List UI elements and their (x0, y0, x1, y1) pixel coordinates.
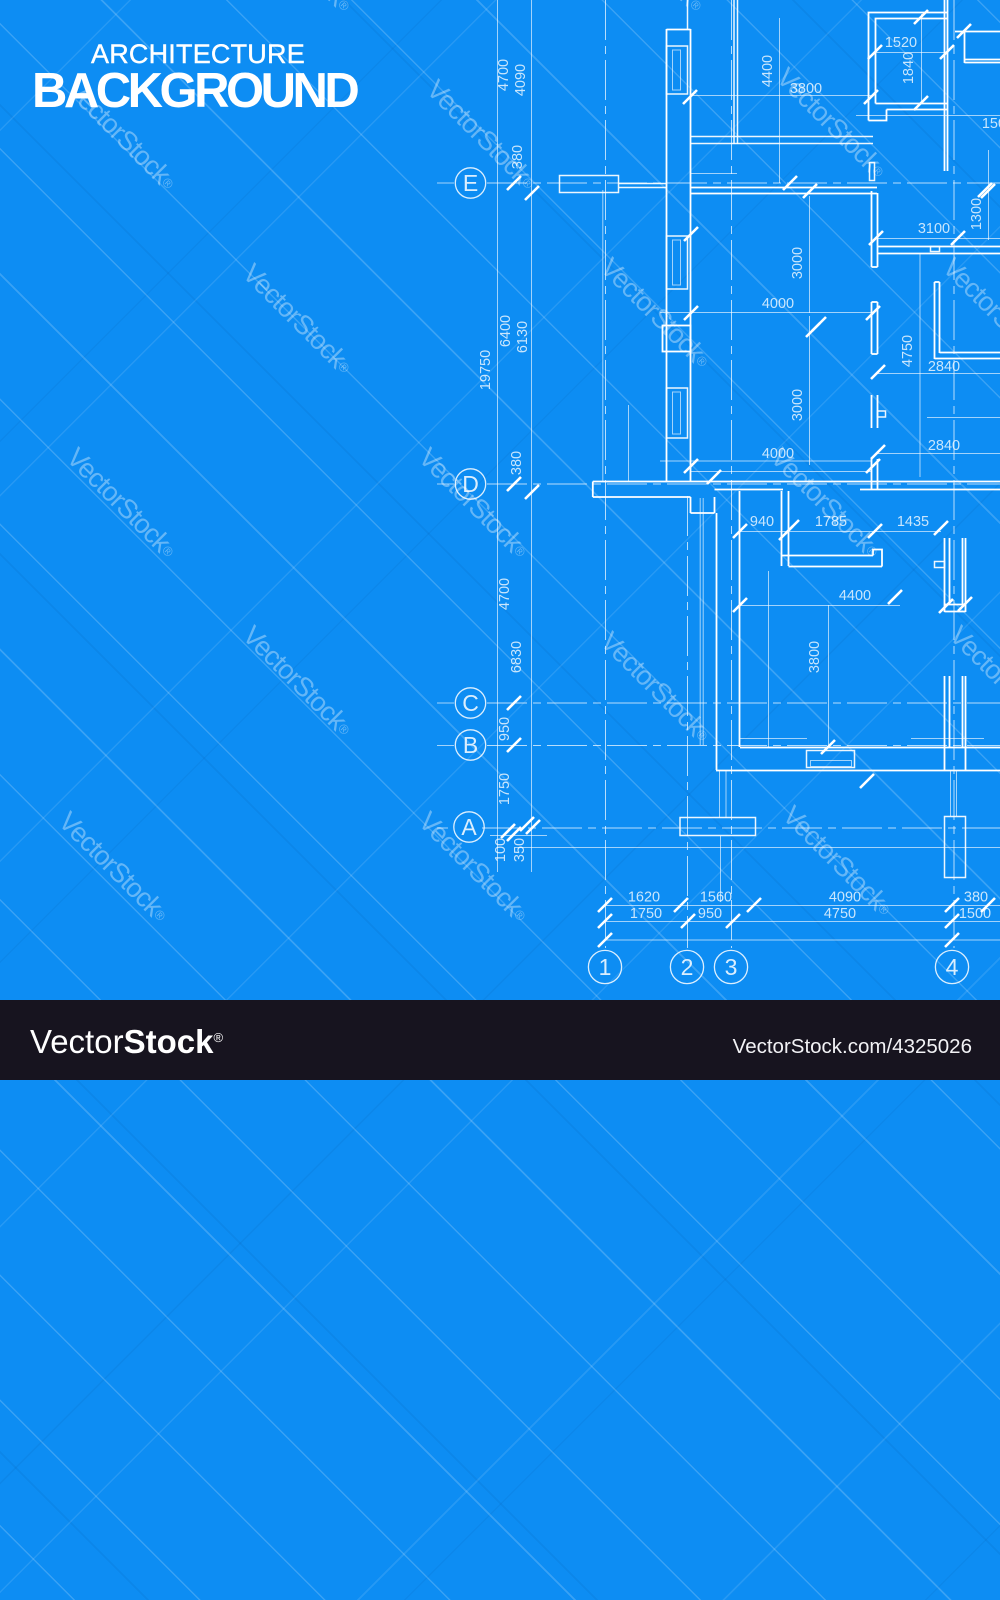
svg-text:380: 380 (964, 890, 988, 906)
svg-text:1: 1 (599, 954, 612, 980)
svg-text:1520: 1520 (885, 35, 917, 51)
svg-text:1750: 1750 (630, 906, 662, 922)
svg-text:A: A (461, 814, 477, 840)
svg-text:950: 950 (497, 717, 513, 741)
svg-text:100: 100 (493, 838, 509, 862)
svg-text:4090: 4090 (513, 64, 529, 96)
svg-text:1750: 1750 (497, 773, 513, 805)
svg-text:4400: 4400 (760, 55, 776, 87)
svg-text:380: 380 (509, 451, 525, 475)
svg-text:1620: 1620 (628, 890, 660, 906)
svg-text:4700: 4700 (497, 578, 513, 610)
svg-text:4090: 4090 (829, 890, 861, 906)
svg-text:B: B (463, 732, 478, 758)
svg-text:4000: 4000 (762, 296, 794, 312)
svg-text:6130: 6130 (515, 321, 531, 353)
svg-text:2: 2 (681, 954, 694, 980)
svg-text:4750: 4750 (900, 335, 916, 367)
svg-text:380: 380 (510, 145, 526, 169)
svg-text:1500: 1500 (982, 116, 1000, 132)
svg-text:4400: 4400 (839, 588, 871, 604)
svg-text:950: 950 (698, 906, 722, 922)
svg-text:3: 3 (725, 954, 738, 980)
svg-text:6830: 6830 (509, 641, 525, 673)
svg-text:C: C (462, 690, 479, 716)
svg-text:4: 4 (946, 954, 959, 980)
svg-text:3800: 3800 (807, 641, 823, 673)
svg-text:3000: 3000 (790, 389, 806, 421)
svg-text:3000: 3000 (790, 247, 806, 279)
svg-text:19750: 19750 (478, 350, 494, 390)
svg-text:4700: 4700 (496, 59, 512, 91)
svg-text:4000: 4000 (762, 446, 794, 462)
svg-text:1785: 1785 (815, 514, 847, 530)
svg-text:1840: 1840 (901, 52, 917, 84)
svg-text:940: 940 (750, 514, 774, 530)
svg-text:2840: 2840 (928, 438, 960, 454)
svg-text:3800: 3800 (790, 81, 822, 97)
svg-text:1560: 1560 (700, 890, 732, 906)
svg-text:E: E (463, 170, 478, 196)
svg-text:3100: 3100 (918, 221, 950, 237)
svg-text:2840: 2840 (928, 359, 960, 375)
svg-text:1300: 1300 (969, 198, 985, 230)
svg-text:1435: 1435 (897, 514, 929, 530)
svg-text:D: D (462, 471, 479, 497)
svg-text:4750: 4750 (824, 906, 856, 922)
svg-text:350: 350 (512, 838, 528, 862)
svg-text:6400: 6400 (498, 315, 514, 347)
